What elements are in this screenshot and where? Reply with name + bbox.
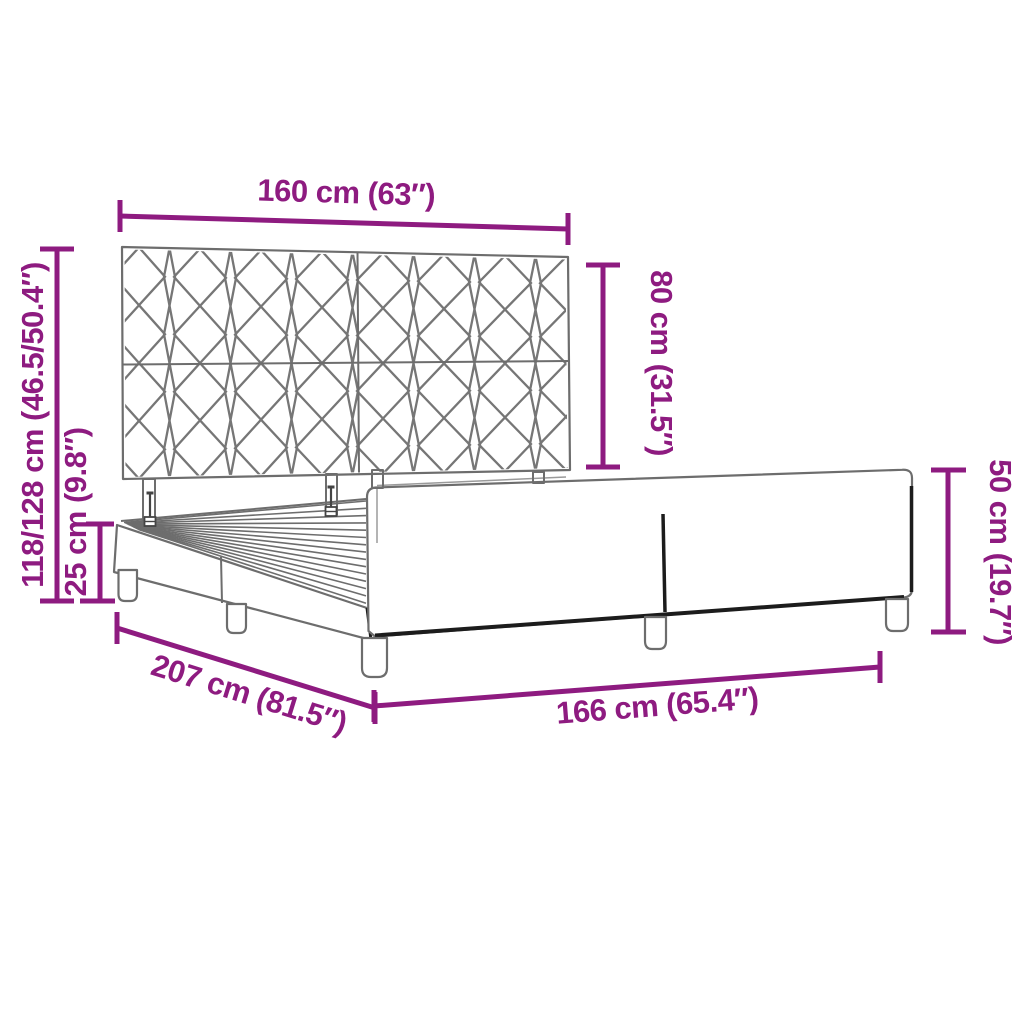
leg	[119, 570, 138, 601]
dimension-frame-width: 166 cm (65.4″)	[374, 651, 880, 731]
diamond-stitch	[591, 311, 602, 364]
leg	[362, 638, 387, 677]
leg	[886, 599, 908, 631]
bed-frame-illustration: 160 cm (63″) 80 cm (31.5″) 118/128 cm (4…	[0, 0, 1024, 1024]
dimension-label-frame-length: 207 cm (81.5″)	[147, 647, 351, 740]
side-panel-seam	[663, 514, 665, 612]
bed-frame-sketch	[113, 247, 912, 677]
dimension-label-base-height: 25 cm (9.8″)	[58, 427, 93, 596]
product-dimension-diagram: 160 cm (63″) 80 cm (31.5″) 118/128 cm (4…	[0, 0, 1024, 1024]
dimension-side-panel-height: 50 cm (19.7″)	[931, 459, 1018, 645]
leg	[227, 604, 246, 633]
dimension-headboard-width: 160 cm (63″)	[120, 173, 568, 245]
side-rail-seam	[221, 557, 222, 603]
diamond-stitch	[591, 417, 602, 470]
dimension-label-side-panel-height: 50 cm (19.7″)	[983, 459, 1018, 645]
leg	[645, 617, 666, 649]
dimension-headboard-height: 80 cm (31.5″)	[586, 265, 679, 467]
dimension-label-headboard-height: 80 cm (31.5″)	[644, 270, 679, 456]
dimension-label-headboard-width: 160 cm (63″)	[257, 173, 436, 213]
bolt	[145, 493, 156, 526]
side-panel	[367, 470, 912, 637]
dimension-label-overall-height: 118/128 cm (46.5/50.4″)	[15, 262, 50, 588]
diamond-stitch	[591, 364, 602, 417]
dimension-base-height: 25 cm (9.8″)	[58, 427, 115, 601]
